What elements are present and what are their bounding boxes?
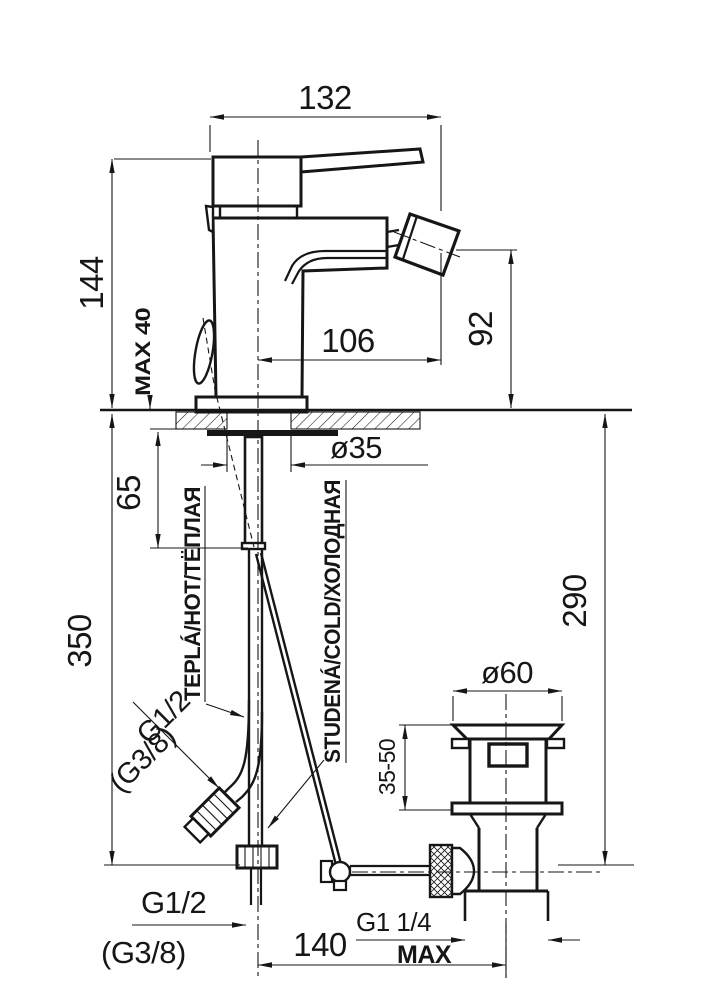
dimension-shank-diameter: ø35 xyxy=(201,430,428,472)
dimension-clamp-range: 35-50 xyxy=(374,725,458,810)
handle-lever xyxy=(301,149,423,172)
dim-144-label: 144 xyxy=(73,256,110,310)
drain-assembly xyxy=(430,725,564,921)
dimension-92: 92 xyxy=(456,250,517,408)
max-label: MAX xyxy=(397,941,452,969)
dimension-flange-diameter: ø60 xyxy=(453,655,562,721)
technical-drawing-page: 132 144 MAX 40 106 92 ø35 65 350 xyxy=(0,0,707,1000)
clamp-flange xyxy=(452,803,562,814)
label-max-deck-thickness: MAX 40 xyxy=(132,308,155,409)
dim-d35-label: ø35 xyxy=(330,430,382,465)
hot-water-label: TEPLÁ/HOT/ТЁПЛАЯ xyxy=(180,487,205,701)
overflow-hole xyxy=(489,744,527,766)
hose-fitting xyxy=(182,788,239,845)
ball-joint xyxy=(330,862,350,882)
spray-head xyxy=(387,214,460,275)
dim-290-label: 290 xyxy=(556,574,593,628)
g1-2-bottom-label: G1/2 xyxy=(141,885,206,920)
faucet-body xyxy=(213,218,387,397)
dim-106-label: 106 xyxy=(321,322,375,359)
supply-hex-nut xyxy=(237,846,277,868)
dim-65-label: 65 xyxy=(110,475,147,511)
dim-92-label: 92 xyxy=(462,311,499,347)
bidet-mixer-technical-drawing: 132 144 MAX 40 106 92 ø35 65 350 xyxy=(0,0,707,1000)
label-waste-thread: G1 1/4 MAX xyxy=(356,907,580,969)
counter-hatch-left xyxy=(176,412,227,429)
adjust-knob xyxy=(430,845,452,897)
dim-350-label: 350 xyxy=(61,614,98,668)
g1-1-4-label: G1 1/4 xyxy=(356,907,431,937)
drain-flange xyxy=(453,725,562,739)
dimension-290: 290 xyxy=(556,414,634,865)
dim-35-50-label: 35-50 xyxy=(374,739,400,795)
rod-guide-stub xyxy=(245,437,262,544)
dim-d60-label: ø60 xyxy=(481,655,533,690)
g3-8-bottom-label: (G3/8) xyxy=(101,935,186,970)
dim-132-label: 132 xyxy=(298,79,352,116)
max-40-label: MAX 40 xyxy=(132,308,155,396)
counter-hatch-right xyxy=(291,412,420,429)
cold-water-label: STUDENÁ/COLD/ХОЛОДНАЯ xyxy=(320,480,345,763)
label-cold-water: STUDENÁ/COLD/ХОЛОДНАЯ xyxy=(268,480,346,828)
dim-140-label: 140 xyxy=(293,926,347,963)
label-supply-thread-bottom: G1/2 (G3/8) xyxy=(101,885,246,970)
label-hot-water: TEPLÁ/HOT/ТЁПЛАЯ xyxy=(180,486,244,717)
